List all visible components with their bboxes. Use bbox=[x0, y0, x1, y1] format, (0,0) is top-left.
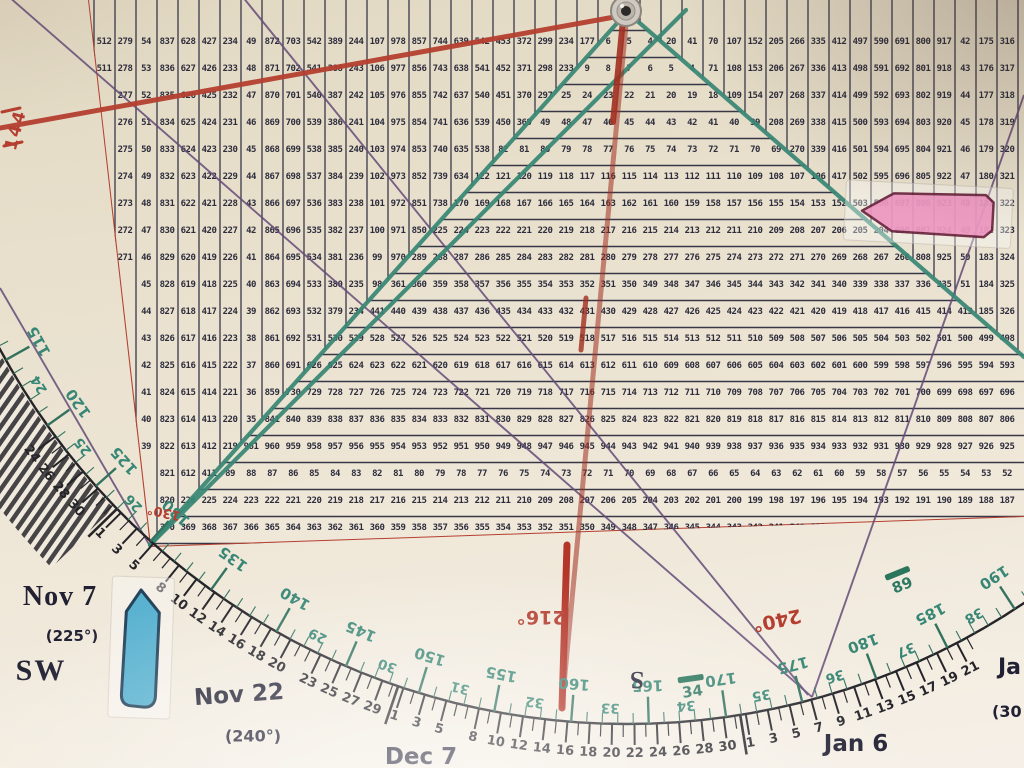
svg-text:421: 421 bbox=[790, 307, 805, 317]
svg-text:367: 367 bbox=[223, 523, 238, 533]
arc-day-label: 3 bbox=[768, 731, 780, 747]
svg-text:221: 221 bbox=[517, 226, 532, 236]
svg-text:504: 504 bbox=[874, 334, 890, 344]
svg-text:179: 179 bbox=[979, 145, 994, 155]
svg-text:618: 618 bbox=[475, 361, 490, 371]
svg-text:6: 6 bbox=[606, 37, 611, 47]
svg-text:718: 718 bbox=[538, 388, 553, 398]
plotter-scene: 5122795483762842723449872703542389244107… bbox=[0, 0, 1024, 768]
svg-text:944: 944 bbox=[601, 442, 617, 452]
svg-text:338: 338 bbox=[874, 280, 889, 290]
svg-text:692: 692 bbox=[895, 64, 910, 74]
svg-text:622: 622 bbox=[391, 361, 406, 371]
svg-text:836: 836 bbox=[160, 64, 175, 74]
svg-text:698: 698 bbox=[958, 388, 973, 398]
svg-text:355: 355 bbox=[517, 280, 532, 290]
svg-text:602: 602 bbox=[811, 361, 826, 371]
svg-text:356: 356 bbox=[496, 280, 511, 290]
svg-text:276: 276 bbox=[685, 253, 700, 263]
svg-text:619: 619 bbox=[454, 361, 469, 371]
svg-text:934: 934 bbox=[811, 442, 827, 452]
svg-text:808: 808 bbox=[958, 415, 973, 425]
svg-text:156: 156 bbox=[748, 199, 763, 209]
svg-text:857: 857 bbox=[412, 37, 427, 47]
svg-text:946: 946 bbox=[559, 442, 574, 452]
svg-text:54: 54 bbox=[141, 37, 152, 47]
svg-text:100: 100 bbox=[370, 226, 385, 236]
svg-text:541: 541 bbox=[475, 64, 490, 74]
svg-text:814: 814 bbox=[832, 415, 848, 425]
arc-day-label: 16 bbox=[225, 631, 248, 653]
svg-text:516: 516 bbox=[622, 334, 637, 344]
svg-text:177: 177 bbox=[580, 37, 595, 47]
svg-text:870: 870 bbox=[265, 91, 280, 101]
svg-text:502: 502 bbox=[916, 334, 931, 344]
svg-text:420: 420 bbox=[202, 226, 217, 236]
svg-text:279: 279 bbox=[622, 253, 637, 263]
svg-text:188: 188 bbox=[979, 496, 994, 506]
svg-text:423: 423 bbox=[748, 307, 763, 317]
svg-text:833: 833 bbox=[160, 145, 175, 155]
svg-text:99: 99 bbox=[372, 253, 382, 263]
svg-text:623: 623 bbox=[181, 172, 196, 182]
month-boundary-tick bbox=[740, 715, 746, 754]
arc-day-label: 3 bbox=[410, 714, 423, 731]
svg-text:416: 416 bbox=[895, 307, 910, 317]
svg-text:831: 831 bbox=[160, 199, 175, 209]
svg-text:340: 340 bbox=[832, 280, 847, 290]
svg-text:742: 742 bbox=[433, 91, 448, 101]
svg-text:102: 102 bbox=[370, 172, 385, 182]
svg-text:960: 960 bbox=[265, 442, 280, 452]
svg-text:239: 239 bbox=[349, 172, 364, 182]
svg-text:939: 939 bbox=[706, 442, 721, 452]
svg-text:160: 160 bbox=[664, 199, 679, 209]
svg-text:75: 75 bbox=[519, 469, 529, 479]
svg-text:358: 358 bbox=[412, 523, 427, 533]
svg-text:363: 363 bbox=[307, 523, 322, 533]
svg-text:71: 71 bbox=[603, 469, 613, 479]
svg-text:708: 708 bbox=[748, 388, 763, 398]
svg-text:161: 161 bbox=[643, 199, 658, 209]
svg-text:84: 84 bbox=[330, 469, 341, 479]
svg-text:821: 821 bbox=[160, 469, 175, 479]
svg-text:836: 836 bbox=[370, 415, 385, 425]
svg-text:154: 154 bbox=[790, 199, 806, 209]
svg-text:971: 971 bbox=[391, 226, 406, 236]
svg-text:500: 500 bbox=[958, 334, 973, 344]
svg-text:212: 212 bbox=[475, 496, 490, 506]
svg-text:65: 65 bbox=[729, 469, 739, 479]
svg-text:927: 927 bbox=[958, 442, 973, 452]
svg-text:381: 381 bbox=[328, 253, 343, 263]
svg-text:499: 499 bbox=[853, 91, 868, 101]
svg-text:726: 726 bbox=[370, 388, 385, 398]
svg-text:938: 938 bbox=[727, 442, 742, 452]
svg-text:191: 191 bbox=[916, 496, 931, 506]
svg-text:286: 286 bbox=[475, 253, 490, 263]
svg-text:219: 219 bbox=[559, 226, 574, 236]
svg-text:73: 73 bbox=[561, 469, 571, 479]
svg-text:45: 45 bbox=[624, 118, 634, 128]
svg-text:326: 326 bbox=[1000, 307, 1015, 317]
arc-green-degree-label: 150 bbox=[412, 643, 447, 669]
arc-green-degree-label: 120 bbox=[62, 385, 95, 421]
svg-text:819: 819 bbox=[727, 415, 742, 425]
svg-text:956: 956 bbox=[349, 442, 364, 452]
svg-text:855: 855 bbox=[412, 91, 427, 101]
svg-text:609: 609 bbox=[664, 361, 679, 371]
svg-text:434: 434 bbox=[517, 307, 533, 317]
svg-text:741: 741 bbox=[433, 118, 448, 128]
svg-text:710: 710 bbox=[706, 388, 721, 398]
svg-text:636: 636 bbox=[454, 118, 469, 128]
svg-text:101: 101 bbox=[370, 199, 385, 209]
svg-text:512: 512 bbox=[706, 334, 721, 344]
svg-text:613: 613 bbox=[181, 442, 196, 452]
arc-day-label: 14 bbox=[532, 740, 552, 757]
svg-text:952: 952 bbox=[433, 442, 448, 452]
svg-text:693: 693 bbox=[286, 307, 301, 317]
svg-text:838: 838 bbox=[328, 415, 343, 425]
svg-text:616: 616 bbox=[517, 361, 532, 371]
svg-text:695: 695 bbox=[895, 145, 910, 155]
svg-text:700: 700 bbox=[286, 118, 301, 128]
svg-text:853: 853 bbox=[412, 145, 427, 155]
svg-text:723: 723 bbox=[433, 388, 448, 398]
svg-text:213: 213 bbox=[454, 496, 469, 506]
svg-text:360: 360 bbox=[370, 523, 385, 533]
svg-text:115: 115 bbox=[622, 172, 637, 182]
svg-text:224: 224 bbox=[223, 496, 239, 506]
svg-text:615: 615 bbox=[181, 388, 196, 398]
svg-text:45: 45 bbox=[960, 118, 970, 128]
svg-text:348: 348 bbox=[622, 523, 637, 533]
svg-text:215: 215 bbox=[412, 496, 427, 506]
degree-label-300-partial: (30 bbox=[992, 702, 1022, 721]
svg-text:55: 55 bbox=[939, 469, 949, 479]
svg-text:270: 270 bbox=[811, 253, 826, 263]
arc-day-label: 8 bbox=[467, 729, 479, 746]
svg-text:194: 194 bbox=[853, 496, 869, 506]
svg-text:370: 370 bbox=[517, 91, 532, 101]
svg-text:625: 625 bbox=[181, 118, 196, 128]
svg-text:413: 413 bbox=[202, 415, 217, 425]
svg-text:279: 279 bbox=[118, 37, 133, 47]
svg-text:601: 601 bbox=[832, 361, 847, 371]
svg-text:46: 46 bbox=[960, 145, 970, 155]
svg-text:207: 207 bbox=[811, 226, 826, 236]
svg-text:6: 6 bbox=[648, 64, 653, 74]
arc-day-label: 30 bbox=[718, 738, 738, 755]
svg-text:694: 694 bbox=[895, 118, 911, 128]
svg-text:214: 214 bbox=[433, 496, 449, 506]
svg-text:591: 591 bbox=[874, 64, 889, 74]
svg-text:50: 50 bbox=[141, 145, 151, 155]
svg-text:157: 157 bbox=[727, 199, 742, 209]
svg-text:167: 167 bbox=[517, 199, 532, 209]
svg-text:103: 103 bbox=[370, 145, 385, 155]
svg-text:413: 413 bbox=[832, 64, 847, 74]
svg-text:419: 419 bbox=[832, 307, 847, 317]
svg-text:22: 22 bbox=[624, 91, 634, 101]
svg-text:592: 592 bbox=[874, 91, 889, 101]
svg-text:72: 72 bbox=[708, 145, 718, 155]
degree-label-240: (240°) bbox=[225, 727, 281, 746]
svg-text:365: 365 bbox=[265, 523, 280, 533]
svg-text:806: 806 bbox=[1000, 415, 1015, 425]
svg-text:515: 515 bbox=[643, 334, 658, 344]
svg-text:704: 704 bbox=[832, 388, 848, 398]
svg-text:220: 220 bbox=[538, 226, 553, 236]
arc-green-week-label: 26 bbox=[121, 491, 146, 516]
svg-text:202: 202 bbox=[685, 496, 700, 506]
svg-text:628: 628 bbox=[181, 37, 196, 47]
svg-text:424: 424 bbox=[202, 118, 218, 128]
svg-text:698: 698 bbox=[286, 172, 301, 182]
svg-text:299: 299 bbox=[538, 37, 553, 47]
svg-text:267: 267 bbox=[790, 64, 805, 74]
svg-text:268: 268 bbox=[853, 253, 868, 263]
svg-text:719: 719 bbox=[517, 388, 532, 398]
svg-text:713: 713 bbox=[643, 388, 658, 398]
svg-text:832: 832 bbox=[160, 172, 175, 182]
svg-text:162: 162 bbox=[622, 199, 637, 209]
arc-day-label: 27 bbox=[339, 690, 361, 711]
svg-text:39: 39 bbox=[246, 307, 256, 317]
svg-text:379: 379 bbox=[328, 307, 343, 317]
svg-text:942: 942 bbox=[643, 442, 658, 452]
svg-text:829: 829 bbox=[517, 415, 532, 425]
svg-text:220: 220 bbox=[307, 496, 322, 506]
svg-text:743: 743 bbox=[433, 64, 448, 74]
svg-text:223: 223 bbox=[475, 226, 490, 236]
svg-text:869: 869 bbox=[265, 118, 280, 128]
svg-text:697: 697 bbox=[286, 199, 301, 209]
svg-text:62: 62 bbox=[792, 469, 802, 479]
svg-text:593: 593 bbox=[874, 118, 889, 128]
svg-text:282: 282 bbox=[559, 253, 574, 263]
svg-text:80: 80 bbox=[414, 469, 424, 479]
svg-text:692: 692 bbox=[286, 334, 301, 344]
svg-text:152: 152 bbox=[748, 37, 763, 47]
arc-green-degree-label: 185 bbox=[912, 599, 948, 629]
svg-text:599: 599 bbox=[874, 361, 889, 371]
svg-text:511: 511 bbox=[97, 64, 112, 74]
svg-text:859: 859 bbox=[265, 388, 280, 398]
svg-text:697: 697 bbox=[979, 388, 994, 398]
svg-text:350: 350 bbox=[580, 523, 595, 533]
svg-text:691: 691 bbox=[895, 37, 910, 47]
svg-text:926: 926 bbox=[979, 442, 994, 452]
svg-text:414: 414 bbox=[202, 388, 218, 398]
arc-green-week-label: 36 bbox=[823, 666, 846, 687]
svg-text:74: 74 bbox=[540, 469, 551, 479]
svg-text:223: 223 bbox=[244, 496, 259, 506]
svg-text:209: 209 bbox=[769, 226, 784, 236]
svg-text:976: 976 bbox=[391, 91, 406, 101]
svg-text:197: 197 bbox=[790, 496, 805, 506]
svg-text:283: 283 bbox=[538, 253, 553, 263]
svg-text:812: 812 bbox=[874, 415, 889, 425]
svg-text:106: 106 bbox=[370, 64, 385, 74]
svg-text:813: 813 bbox=[853, 415, 868, 425]
svg-text:533: 533 bbox=[307, 280, 322, 290]
svg-text:694: 694 bbox=[286, 280, 302, 290]
svg-text:436: 436 bbox=[475, 307, 490, 317]
svg-text:108: 108 bbox=[727, 64, 742, 74]
svg-text:714: 714 bbox=[622, 388, 638, 398]
svg-text:707: 707 bbox=[769, 388, 784, 398]
arc-day-label: 5 bbox=[790, 726, 802, 743]
svg-text:111: 111 bbox=[706, 172, 721, 182]
svg-text:49: 49 bbox=[246, 37, 256, 47]
svg-text:5: 5 bbox=[627, 37, 632, 47]
svg-text:343: 343 bbox=[727, 523, 742, 533]
svg-text:278: 278 bbox=[118, 64, 133, 74]
arc-day-label: 21 bbox=[959, 658, 982, 680]
svg-text:359: 359 bbox=[391, 523, 406, 533]
svg-text:955: 955 bbox=[370, 442, 385, 452]
svg-text:41: 41 bbox=[141, 388, 151, 398]
svg-text:932: 932 bbox=[853, 442, 868, 452]
svg-text:822: 822 bbox=[160, 442, 175, 452]
svg-text:833: 833 bbox=[433, 415, 448, 425]
svg-text:511: 511 bbox=[727, 334, 742, 344]
arc-day-label: 14 bbox=[205, 618, 228, 641]
svg-text:51: 51 bbox=[960, 280, 970, 290]
svg-text:808: 808 bbox=[916, 253, 931, 263]
svg-text:386: 386 bbox=[328, 118, 343, 128]
svg-text:414: 414 bbox=[832, 91, 848, 101]
svg-text:503: 503 bbox=[895, 334, 910, 344]
svg-text:603: 603 bbox=[790, 361, 805, 371]
svg-text:839: 839 bbox=[307, 415, 322, 425]
svg-text:867: 867 bbox=[265, 172, 280, 182]
arc-day-label: 1 bbox=[91, 525, 108, 542]
svg-text:87: 87 bbox=[267, 469, 277, 479]
svg-text:199: 199 bbox=[748, 496, 763, 506]
svg-text:320: 320 bbox=[1000, 145, 1015, 155]
svg-text:154: 154 bbox=[748, 91, 764, 101]
svg-text:183: 183 bbox=[979, 253, 994, 263]
svg-text:217: 217 bbox=[370, 496, 385, 506]
svg-text:918: 918 bbox=[937, 64, 952, 74]
svg-text:44: 44 bbox=[246, 172, 257, 182]
svg-text:937: 937 bbox=[748, 442, 763, 452]
svg-text:525: 525 bbox=[433, 334, 448, 344]
svg-text:954: 954 bbox=[391, 442, 407, 452]
svg-text:232: 232 bbox=[223, 91, 238, 101]
svg-text:218: 218 bbox=[580, 226, 595, 236]
svg-text:234: 234 bbox=[223, 37, 239, 47]
svg-text:336: 336 bbox=[811, 64, 826, 74]
arc-day-label: 28 bbox=[695, 741, 715, 758]
svg-text:539: 539 bbox=[307, 118, 322, 128]
svg-text:418: 418 bbox=[853, 307, 868, 317]
svg-text:815: 815 bbox=[811, 415, 826, 425]
svg-text:205: 205 bbox=[769, 37, 784, 47]
svg-text:271: 271 bbox=[118, 253, 133, 263]
svg-text:212: 212 bbox=[706, 226, 721, 236]
svg-text:107: 107 bbox=[790, 172, 805, 182]
svg-text:801: 801 bbox=[916, 64, 931, 74]
svg-text:450: 450 bbox=[496, 118, 511, 128]
svg-text:415: 415 bbox=[916, 307, 931, 317]
svg-text:341: 341 bbox=[811, 280, 826, 290]
svg-text:266: 266 bbox=[790, 37, 805, 47]
svg-text:42: 42 bbox=[960, 37, 970, 47]
svg-text:45: 45 bbox=[141, 280, 151, 290]
svg-text:729: 729 bbox=[307, 388, 322, 398]
svg-text:278: 278 bbox=[643, 253, 658, 263]
svg-text:86: 86 bbox=[288, 469, 298, 479]
svg-text:816: 816 bbox=[790, 415, 805, 425]
svg-text:225: 225 bbox=[202, 496, 217, 506]
svg-text:594: 594 bbox=[979, 361, 995, 371]
svg-text:627: 627 bbox=[181, 64, 196, 74]
svg-text:76: 76 bbox=[624, 145, 634, 155]
svg-text:928: 928 bbox=[937, 442, 952, 452]
arc-day-label: 5 bbox=[125, 557, 142, 574]
svg-text:233: 233 bbox=[223, 64, 238, 74]
svg-text:604: 604 bbox=[769, 361, 785, 371]
svg-text:166: 166 bbox=[538, 199, 553, 209]
svg-text:185: 185 bbox=[979, 307, 994, 317]
svg-text:542: 542 bbox=[307, 37, 322, 47]
svg-text:229: 229 bbox=[223, 172, 238, 182]
svg-text:693: 693 bbox=[895, 91, 910, 101]
svg-text:45: 45 bbox=[246, 145, 256, 155]
svg-text:336: 336 bbox=[916, 280, 931, 290]
svg-text:73: 73 bbox=[687, 145, 697, 155]
svg-text:275: 275 bbox=[118, 145, 133, 155]
svg-text:840: 840 bbox=[286, 415, 301, 425]
svg-text:37: 37 bbox=[246, 361, 256, 371]
svg-text:540: 540 bbox=[475, 91, 490, 101]
compass-label-sw: SW bbox=[16, 654, 67, 688]
svg-text:69: 69 bbox=[645, 469, 655, 479]
svg-text:383: 383 bbox=[328, 199, 343, 209]
arc-green-degree-label: 135 bbox=[215, 542, 251, 575]
svg-text:57: 57 bbox=[897, 469, 907, 479]
svg-text:606: 606 bbox=[727, 361, 742, 371]
svg-text:351: 351 bbox=[559, 523, 574, 533]
arc-green-degree-label: 140 bbox=[277, 583, 313, 614]
svg-text:618: 618 bbox=[181, 307, 196, 317]
svg-text:975: 975 bbox=[391, 118, 406, 128]
svg-text:53: 53 bbox=[141, 64, 151, 74]
svg-text:433: 433 bbox=[538, 307, 553, 317]
svg-text:829: 829 bbox=[160, 253, 175, 263]
svg-text:612: 612 bbox=[181, 469, 196, 479]
svg-text:66: 66 bbox=[708, 469, 718, 479]
svg-text:837: 837 bbox=[349, 415, 364, 425]
svg-text:705: 705 bbox=[811, 388, 826, 398]
arc-day-label: 19 bbox=[938, 669, 961, 690]
svg-text:437: 437 bbox=[454, 307, 469, 317]
svg-text:424: 424 bbox=[727, 307, 743, 317]
svg-text:810: 810 bbox=[916, 415, 931, 425]
svg-text:222: 222 bbox=[223, 361, 238, 371]
svg-text:721: 721 bbox=[475, 388, 490, 398]
svg-text:35: 35 bbox=[246, 415, 256, 425]
svg-text:210: 210 bbox=[748, 226, 763, 236]
svg-text:8: 8 bbox=[606, 64, 611, 74]
arc-day-label: 25 bbox=[318, 680, 341, 701]
arc-green-week-label: 24 bbox=[27, 372, 51, 396]
svg-text:214: 214 bbox=[664, 226, 680, 236]
